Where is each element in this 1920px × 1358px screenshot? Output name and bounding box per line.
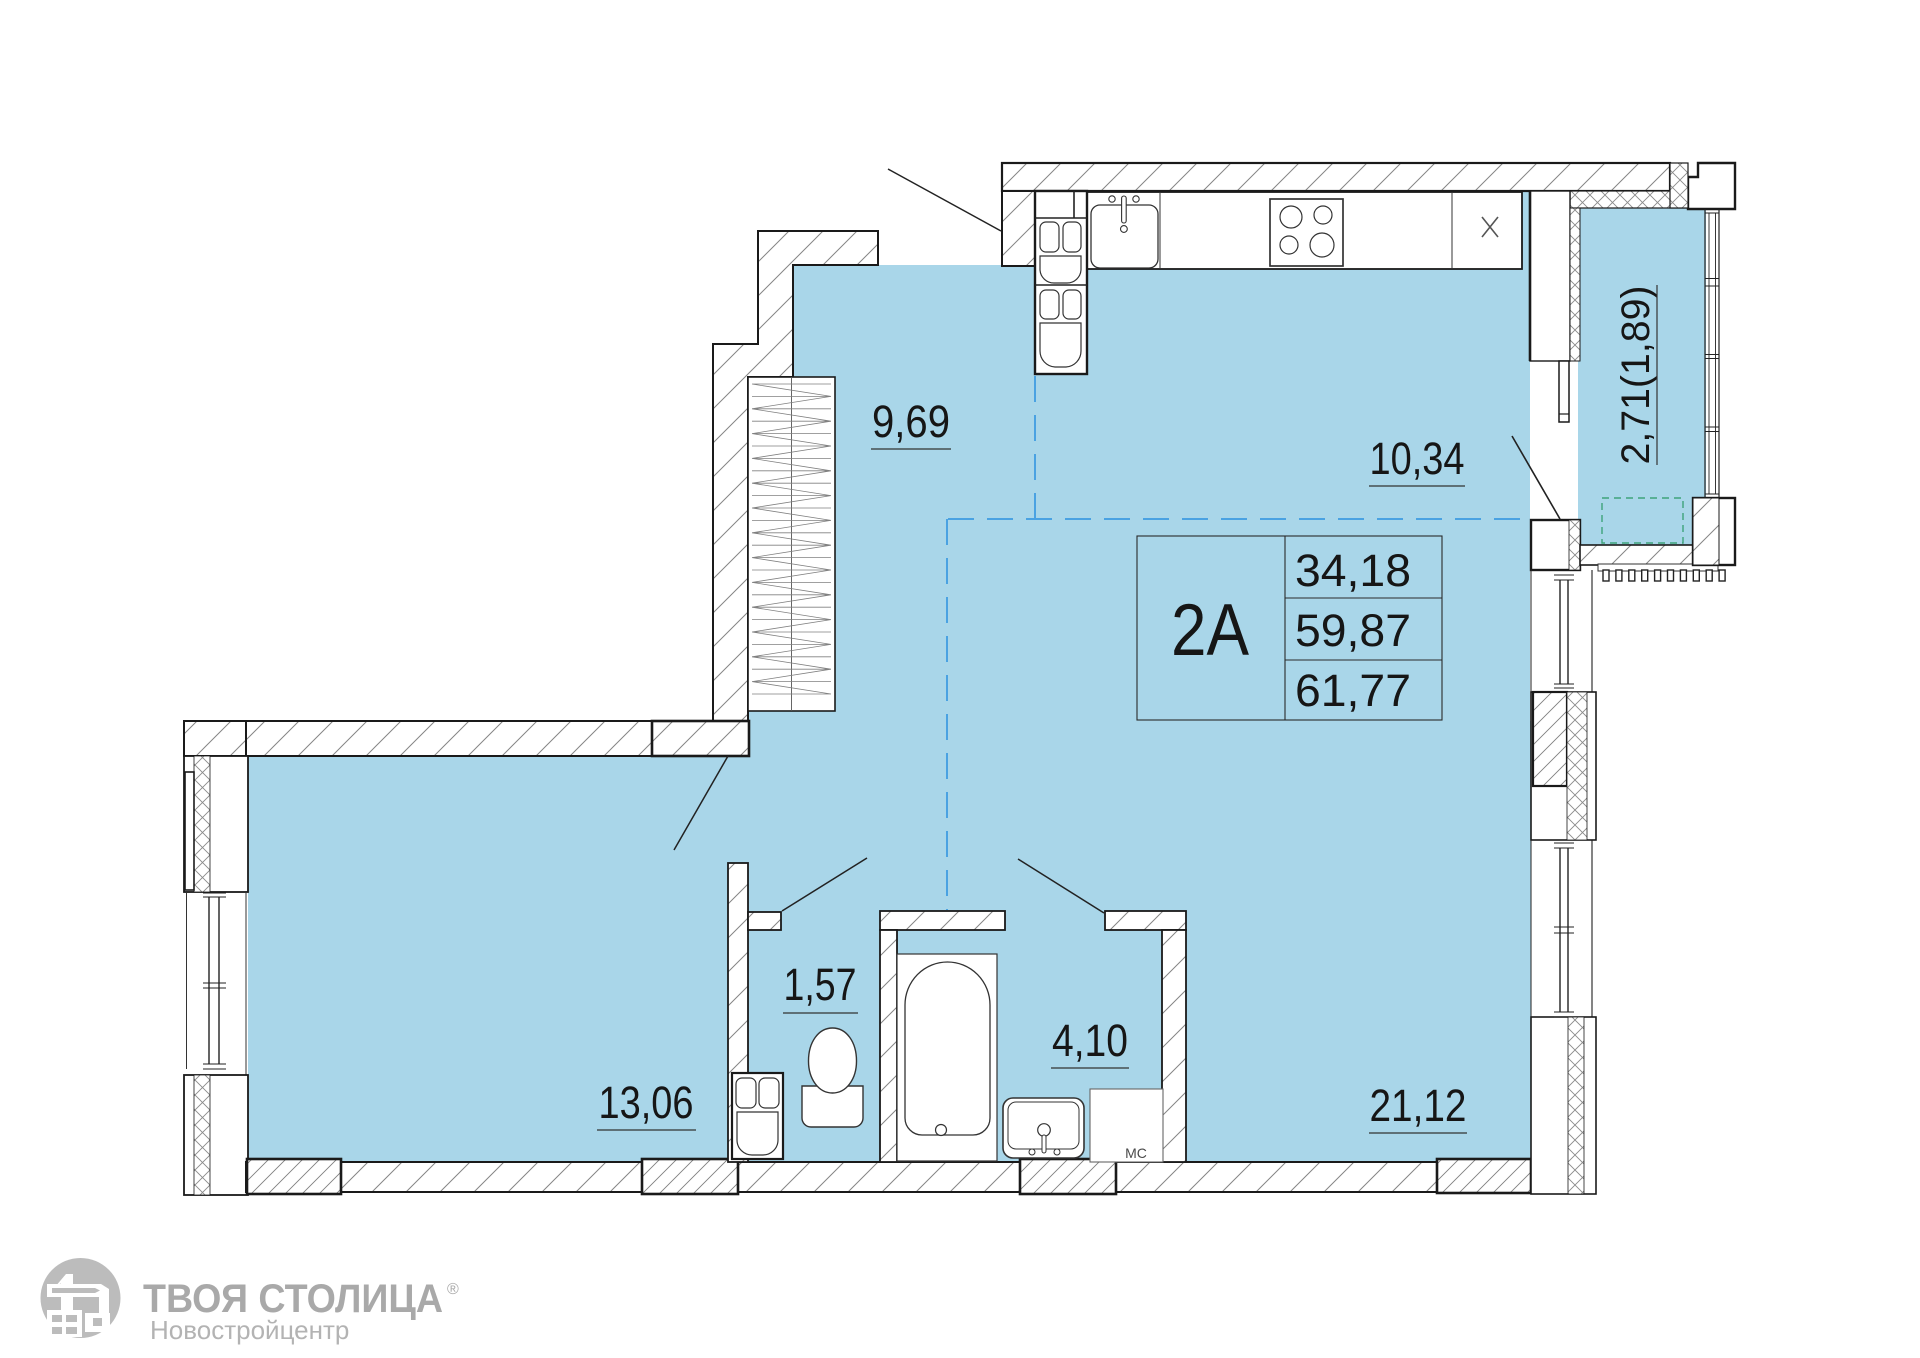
svg-text:10,34: 10,34 [1370,433,1465,484]
svg-text:61,77: 61,77 [1295,665,1411,716]
svg-text:®: ® [447,1281,459,1298]
svg-text:2,71(1,89): 2,71(1,89) [1614,286,1658,465]
svg-text:Новостройцентр: Новостройцентр [150,1315,349,1345]
svg-text:1,57: 1,57 [784,959,857,1010]
svg-text:МС: МС [1125,1145,1147,1161]
svg-text:13,06: 13,06 [599,1077,694,1128]
svg-text:34,18: 34,18 [1295,545,1411,596]
svg-text:4,10: 4,10 [1052,1015,1128,1066]
svg-text:21,12: 21,12 [1370,1080,1467,1131]
svg-text:9,69: 9,69 [872,396,950,447]
svg-text:59,87: 59,87 [1295,605,1411,656]
svg-text:2A: 2A [1171,590,1249,671]
